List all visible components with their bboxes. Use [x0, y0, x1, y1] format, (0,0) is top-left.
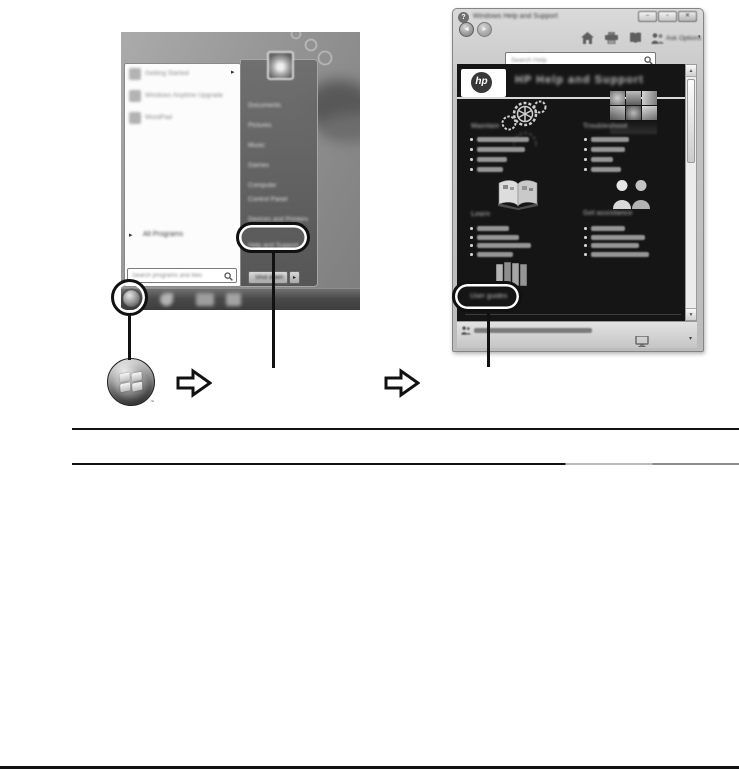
scrollbar-thumb[interactable]	[687, 79, 695, 163]
all-programs-arrow-icon: ▸	[129, 231, 133, 239]
section-heading-learn[interactable]: Learn	[471, 211, 490, 218]
table-rule-top	[72, 428, 739, 430]
link-placeholder[interactable]	[477, 235, 519, 240]
callout-line-user-guides	[487, 308, 491, 367]
bullet-icon	[470, 236, 473, 239]
link-placeholder[interactable]	[477, 167, 503, 172]
start-menu-item-pictures[interactable]: Pictures	[248, 122, 271, 129]
status-bar: ▾	[457, 321, 697, 348]
link-placeholder[interactable]	[477, 252, 513, 257]
callout-circle-user-guides	[452, 281, 522, 312]
table-rule-bottom	[72, 463, 739, 465]
bullet-icon	[584, 168, 587, 171]
start-menu-item-computer[interactable]: Computer	[248, 182, 277, 189]
bullet-icon	[584, 253, 587, 256]
link-placeholder[interactable]	[591, 252, 649, 257]
start-menu-item-games[interactable]: Games	[248, 162, 269, 169]
ask-people-icon[interactable]	[651, 33, 664, 44]
link-placeholder[interactable]	[591, 226, 625, 231]
hp-logo-box: hp	[461, 69, 506, 97]
browse-help-book-icon[interactable]	[629, 32, 642, 44]
window-title: Windows Help and Support	[473, 13, 558, 20]
bullet-icon	[584, 244, 587, 247]
link-placeholder[interactable]	[477, 147, 525, 152]
bullet-icon	[584, 227, 587, 230]
manual-page: { "start_screenshot": { "programs": [ { …	[0, 0, 739, 771]
scroll-up-button[interactable]: ▲	[686, 65, 696, 77]
bullet-icon	[584, 158, 587, 161]
all-programs-label[interactable]: All Programs	[143, 231, 183, 238]
bullet-icon	[584, 148, 587, 151]
link-placeholder[interactable]	[477, 243, 531, 248]
bullet-icon	[470, 148, 473, 151]
section-heading-troubleshoot[interactable]: Troubleshoot	[583, 123, 627, 130]
wallpaper-bubble	[318, 51, 332, 65]
callout-line-start-button	[128, 312, 132, 360]
link-placeholder[interactable]	[591, 235, 645, 240]
submenu-arrow-icon: ▸	[231, 68, 235, 76]
bullet-icon	[584, 138, 587, 141]
program-icon	[129, 112, 141, 124]
windows-start-orb[interactable]: ™	[107, 358, 155, 406]
link-placeholder[interactable]	[591, 157, 613, 162]
program-item[interactable]: Getting Started	[145, 70, 189, 77]
start-menu-item-music[interactable]: Music	[248, 142, 265, 149]
status-dropdown-icon[interactable]: ▾	[689, 335, 692, 342]
bullet-icon	[470, 138, 473, 141]
link-placeholder[interactable]	[591, 243, 639, 248]
link-placeholder[interactable]	[477, 137, 529, 142]
minimize-button[interactable]: –	[638, 11, 657, 22]
status-text-placeholder	[474, 328, 592, 333]
help-search-placeholder: Search Help	[511, 57, 547, 64]
trademark-symbol: ™	[150, 399, 154, 404]
callout-circle-help-support	[236, 222, 310, 253]
hp-logo-icon: hp	[471, 72, 492, 93]
wallpaper-bubble	[291, 32, 301, 39]
step-arrow-icon	[384, 368, 420, 398]
section-heading-get-assistance[interactable]: Get assistance	[583, 210, 632, 217]
shut-down-button[interactable]: Shut down	[248, 271, 288, 284]
shut-down-options-arrow[interactable]: ▸	[289, 271, 300, 284]
content-divider	[465, 314, 681, 315]
link-placeholder[interactable]	[591, 167, 621, 172]
wallpaper-bubble	[305, 39, 317, 51]
page-bottom-rule	[0, 766, 739, 769]
shut-down-label: Shut down	[255, 275, 283, 281]
banner-title: HP Help and Support	[515, 74, 644, 86]
start-search-input[interactable]: Search programs and files	[127, 268, 237, 283]
gears-icon	[497, 99, 547, 131]
start-menu-item-control-panel[interactable]: Control Panel	[248, 196, 287, 203]
computer-icon[interactable]	[635, 336, 649, 347]
bullet-icon	[470, 253, 473, 256]
options-dropdown-icon[interactable]: ▾	[698, 34, 701, 40]
program-item[interactable]: Windows Anytime Upgrade	[145, 92, 223, 99]
user-avatar[interactable]	[267, 51, 294, 80]
callout-line-help-support	[272, 250, 276, 368]
print-icon[interactable]	[605, 32, 618, 44]
close-button[interactable]: ✕	[678, 11, 697, 22]
ask-label[interactable]: Ask	[666, 35, 677, 42]
troubleshoot-thumbnails-icon	[610, 91, 657, 121]
start-menu-item-documents[interactable]: Documents	[248, 102, 281, 109]
scrollbar[interactable]: ▲ ▼	[685, 64, 697, 321]
link-placeholder[interactable]	[591, 147, 625, 152]
search-icon	[224, 272, 233, 281]
scroll-down-button[interactable]: ▼	[686, 308, 696, 320]
maximize-button[interactable]: ▫	[658, 11, 677, 22]
bullet-icon	[470, 158, 473, 161]
taskbar-icon-media[interactable]	[160, 293, 173, 306]
link-placeholder[interactable]	[591, 137, 629, 142]
link-placeholder[interactable]	[477, 226, 509, 231]
bullet-icon	[470, 227, 473, 230]
section-heading-maintain[interactable]: Maintain	[471, 123, 499, 130]
back-button[interactable]: ◄	[459, 22, 474, 37]
forward-button[interactable]: ►	[477, 22, 492, 37]
callout-circle-start-button	[111, 279, 148, 316]
home-icon[interactable]	[581, 32, 594, 44]
taskbar-icon-explorer[interactable]	[196, 293, 214, 306]
two-people-icon	[610, 179, 654, 209]
support-options-icon	[461, 326, 471, 335]
windows-flag-icon	[120, 372, 143, 391]
link-placeholder[interactable]	[477, 157, 507, 162]
taskbar-icon-browser[interactable]	[226, 293, 241, 306]
program-icon	[129, 90, 141, 102]
start-menu-screenshot: Getting Started ▸ Windows Anytime Upgrad…	[121, 32, 360, 310]
program-item[interactable]: WordPad	[145, 114, 172, 121]
program-icon	[129, 68, 141, 80]
bullet-icon	[470, 244, 473, 247]
bullet-icon	[470, 168, 473, 171]
open-book-icon	[495, 177, 541, 211]
step-arrow-icon	[176, 368, 212, 398]
bullet-icon	[584, 236, 587, 239]
start-search-placeholder: Search programs and files	[132, 273, 202, 279]
